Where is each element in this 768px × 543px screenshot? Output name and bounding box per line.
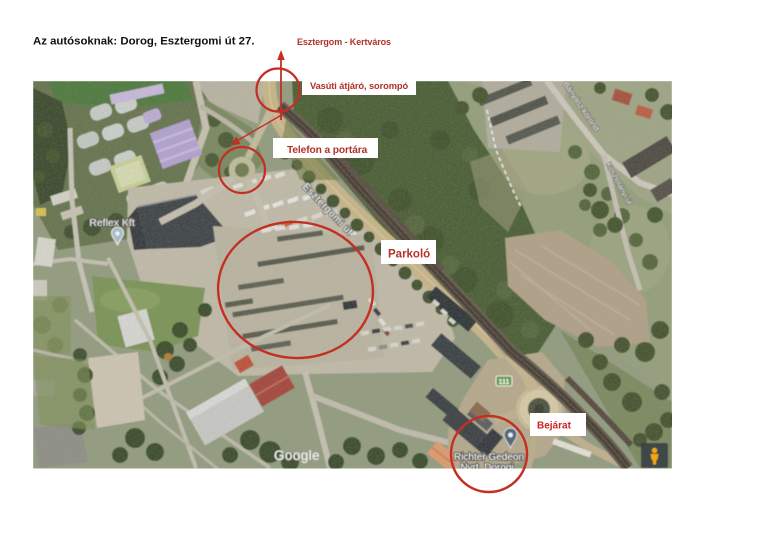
svg-text:Parkoló: Parkoló: [388, 249, 430, 261]
svg-text:Telefon a portára: Telefon a portára: [287, 145, 368, 156]
svg-text:Vasúti átjáró, sorompó: Vasúti átjáró, sorompó: [310, 81, 408, 91]
svg-text:Google: Google: [274, 448, 320, 463]
svg-text:Esztergom - Kertváros: Esztergom - Kertváros: [297, 37, 391, 47]
svg-text:Richter Gedeon: Richter Gedeon: [454, 452, 524, 463]
svg-text:111: 111: [499, 379, 510, 386]
svg-text:Bejárat: Bejárat: [537, 421, 572, 432]
svg-text:Az autósoknak: Dorog, Esztergo: Az autósoknak: Dorog, Esztergomi út 27.: [33, 36, 255, 48]
svg-text:Reflex Kft: Reflex Kft: [89, 217, 135, 229]
